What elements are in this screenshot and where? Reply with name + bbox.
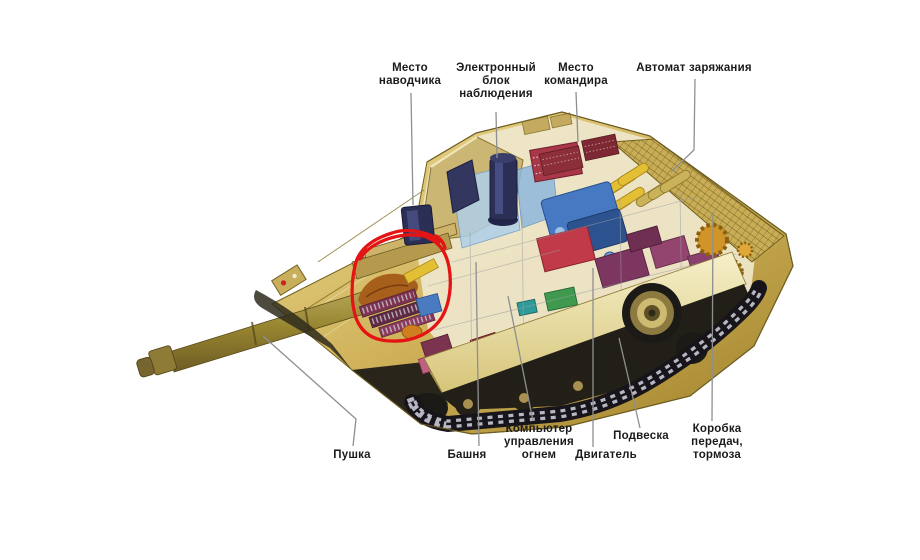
label-fire-control-computer: Компьютер управления огнем [504, 423, 574, 462]
label-autoloader: Автомат заряжания [636, 62, 752, 75]
leader-gunner-position [411, 93, 413, 205]
label-commander-position: Место командира [544, 62, 608, 88]
label-surveillance-unit: Электронный блок наблюдения [456, 62, 536, 101]
commander-sight-column [488, 153, 518, 226]
label-engine: Двигатель [575, 449, 637, 462]
label-gearbox-brakes: Коробка передач, тормоза [691, 423, 743, 462]
drive-sprocket-wheel [622, 283, 682, 343]
label-suspension: Подвеска [613, 430, 669, 443]
label-turret: Башня [448, 449, 487, 462]
label-gunner-position: Место наводчика [379, 62, 441, 88]
tank-cutaway-figure: Место наводчика Электронный блок наблюде… [0, 0, 920, 560]
label-gun: Пушка [333, 449, 370, 462]
